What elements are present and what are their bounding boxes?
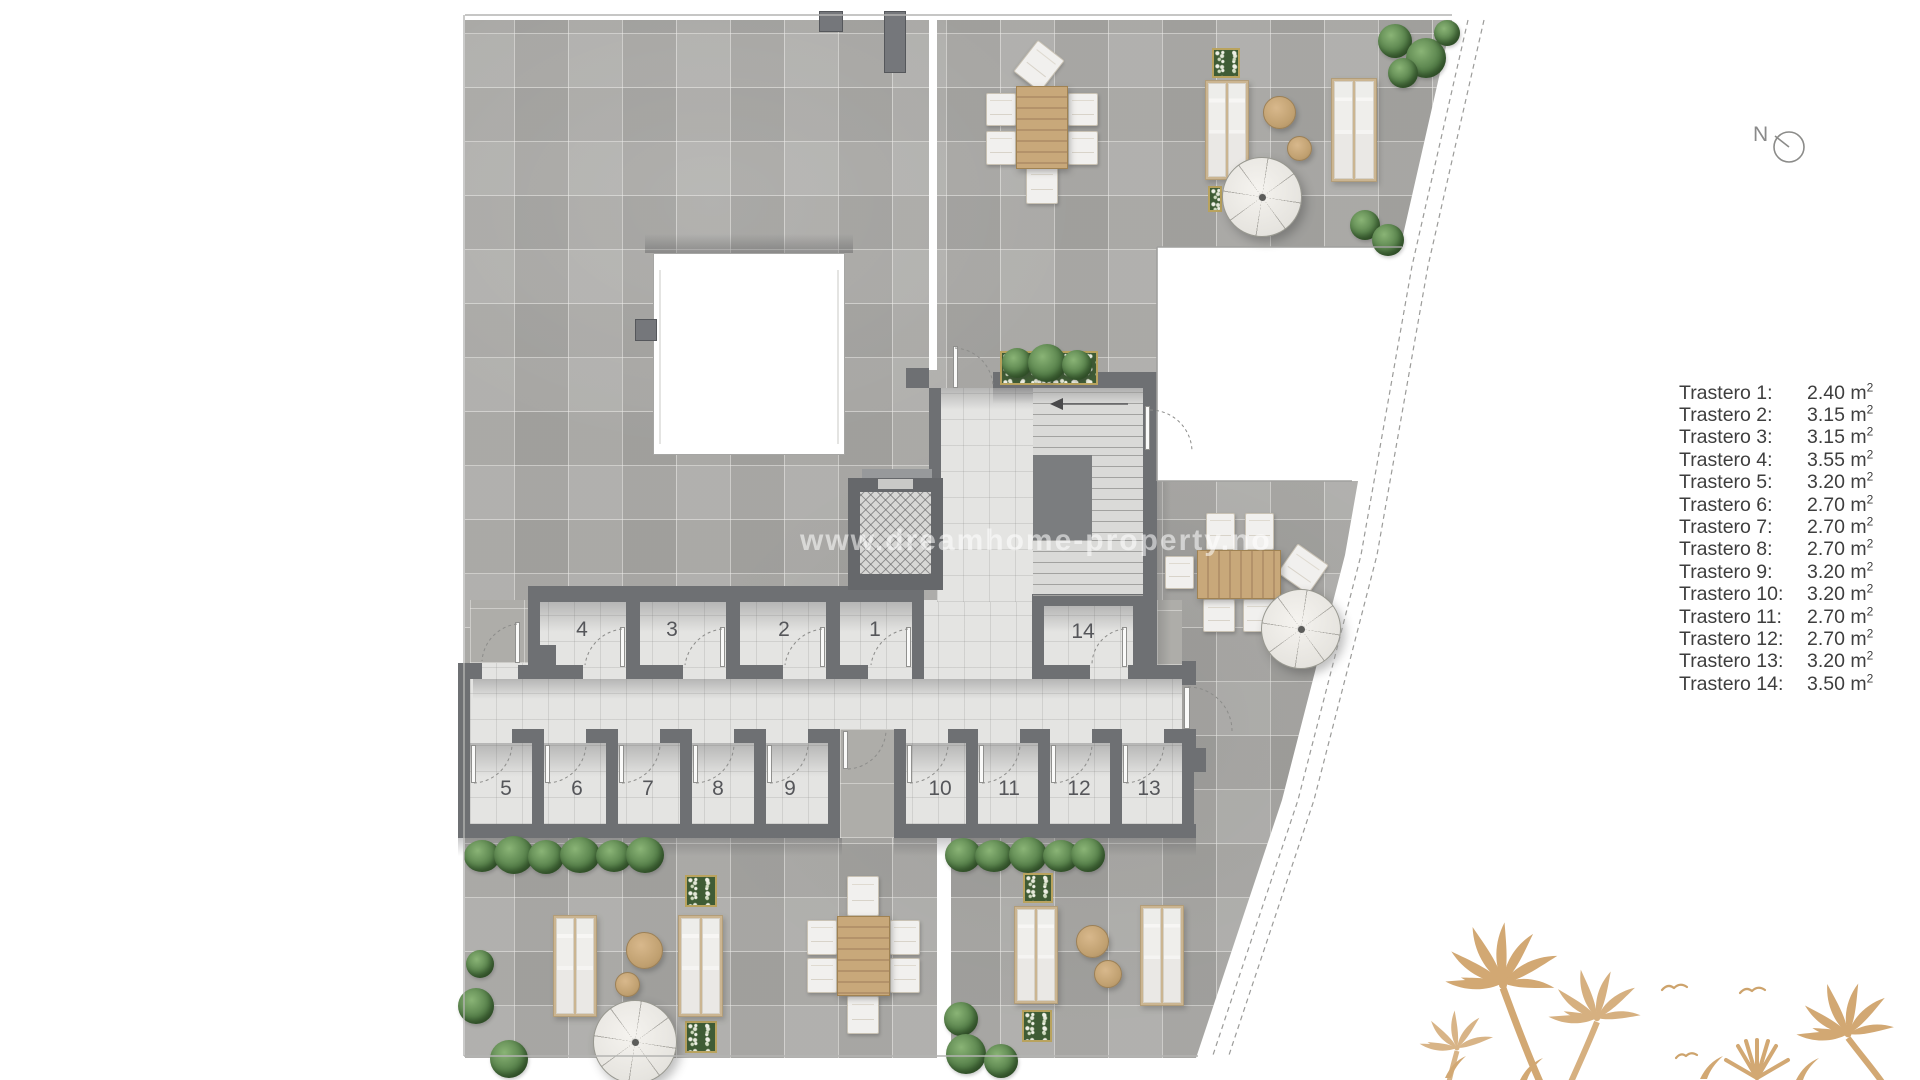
bush-icon bbox=[1434, 20, 1460, 46]
legend-label: Trastero 9: bbox=[1679, 561, 1807, 584]
bush-icon bbox=[466, 950, 494, 978]
round-table bbox=[1076, 925, 1109, 958]
room-shadow bbox=[544, 743, 606, 777]
wall bbox=[540, 645, 556, 665]
wall bbox=[1182, 729, 1196, 748]
legend-area-value: 2.70 m bbox=[1807, 538, 1867, 560]
legend-area: 2.70 m2 bbox=[1807, 494, 1873, 517]
legend-area: 2.70 m2 bbox=[1807, 538, 1873, 561]
wall bbox=[1182, 743, 1194, 838]
legend-area-value: 2.70 m bbox=[1807, 628, 1867, 650]
legend-label: Trastero 7: bbox=[1679, 516, 1807, 539]
watermark: www.dreamhome-property.no bbox=[800, 524, 1272, 558]
palm-trees-decoration bbox=[1419, 922, 1894, 1080]
legend-label: Trastero 10: bbox=[1679, 583, 1807, 606]
chair bbox=[807, 920, 837, 955]
wall bbox=[948, 729, 978, 743]
wall bbox=[1092, 729, 1122, 743]
legend-row: Trastero 6:2.70 m2 bbox=[1679, 494, 1873, 516]
plant-icon bbox=[626, 837, 664, 873]
elevator-door-slit bbox=[878, 479, 913, 489]
parasol-pole bbox=[1298, 626, 1305, 633]
elevator-machine-band bbox=[862, 469, 932, 478]
chair bbox=[807, 958, 837, 993]
neighbor-room-void bbox=[1157, 247, 1407, 481]
legend-label: Trastero 2: bbox=[1679, 404, 1807, 427]
chair bbox=[1165, 556, 1194, 589]
door-leaf bbox=[820, 627, 825, 667]
wall bbox=[906, 368, 929, 388]
planter-box bbox=[685, 875, 717, 907]
room-number-11: 11 bbox=[998, 777, 1020, 801]
roof-chimney-tall bbox=[884, 11, 906, 73]
room-number-8: 8 bbox=[712, 777, 724, 801]
legend-row: Trastero 9:3.20 m2 bbox=[1679, 561, 1873, 583]
wall bbox=[626, 600, 640, 665]
wall bbox=[586, 729, 618, 743]
wall bbox=[734, 729, 766, 743]
legend-area: 2.70 m2 bbox=[1807, 628, 1873, 651]
sun-lounger bbox=[1143, 908, 1161, 1003]
planter-box bbox=[1208, 186, 1222, 212]
wall bbox=[912, 600, 924, 679]
bird-icon bbox=[1676, 1053, 1697, 1058]
legend-area-value: 2.70 m bbox=[1807, 494, 1867, 516]
door-leaf bbox=[907, 745, 912, 783]
legend-area: 3.50 m2 bbox=[1807, 673, 1873, 696]
round-table bbox=[1094, 960, 1122, 988]
room-shadow bbox=[470, 743, 532, 777]
sun-lounger-pair bbox=[678, 915, 723, 1017]
legend-area: 3.55 m2 bbox=[1807, 449, 1873, 472]
legend-area-value: 2.70 m bbox=[1807, 516, 1867, 538]
legend-row: Trastero 5:3.20 m2 bbox=[1679, 472, 1873, 494]
palm-tree-icon bbox=[1445, 922, 1560, 1080]
legend-area-value: 3.55 m bbox=[1807, 449, 1867, 471]
wall bbox=[660, 729, 692, 743]
door-leaf bbox=[720, 627, 725, 667]
door-leaf bbox=[843, 731, 848, 769]
compass-needle bbox=[1775, 136, 1789, 147]
room-number-3: 3 bbox=[666, 618, 678, 642]
plant-icon bbox=[1028, 344, 1066, 382]
room-number-7: 7 bbox=[642, 777, 654, 801]
door-leaf bbox=[619, 745, 624, 783]
door-leaf bbox=[906, 627, 911, 667]
wall bbox=[826, 665, 868, 679]
legend-area: 3.15 m2 bbox=[1807, 404, 1873, 427]
room-number-6: 6 bbox=[571, 777, 583, 801]
legend-area-value: 2.40 m bbox=[1807, 382, 1867, 404]
plant-icon bbox=[1071, 838, 1105, 872]
floor-plan-page: 4 3 2 1 14 5 6 7 8 9 10 11 12 13 www.dre… bbox=[0, 0, 1920, 1080]
sun-lounger bbox=[1208, 83, 1226, 177]
room-shadow bbox=[766, 743, 828, 777]
sun-lounger bbox=[1334, 81, 1353, 179]
legend-area-value: 3.20 m bbox=[1807, 650, 1867, 672]
chair bbox=[1068, 131, 1098, 165]
door-leaf bbox=[979, 745, 984, 783]
legend-row: Trastero 3:3.15 m2 bbox=[1679, 427, 1873, 449]
legend: Trastero 1:2.40 m2 Trastero 2:3.15 m2 Tr… bbox=[1679, 382, 1873, 695]
wall bbox=[726, 600, 740, 665]
room-shadow bbox=[906, 743, 966, 777]
roof-separation-strip bbox=[929, 14, 937, 370]
door-leaf bbox=[1123, 745, 1128, 783]
sun-lounger-pair bbox=[1140, 905, 1184, 1006]
terrace-passage bbox=[840, 729, 894, 838]
legend-area-sup: 2 bbox=[1867, 604, 1874, 618]
bush-icon bbox=[490, 1040, 528, 1078]
sun-lounger bbox=[556, 918, 574, 1014]
chair bbox=[847, 996, 879, 1034]
door-leaf bbox=[953, 346, 958, 388]
legend-label: Trastero 14: bbox=[1679, 673, 1807, 696]
wall bbox=[1038, 743, 1050, 824]
legend-area-value: 3.50 m bbox=[1807, 673, 1867, 695]
sun-lounger bbox=[1163, 908, 1181, 1003]
legend-area-sup: 2 bbox=[1867, 492, 1874, 506]
wall bbox=[1020, 729, 1050, 743]
compass-circle bbox=[1774, 132, 1804, 162]
door-leaf bbox=[1122, 627, 1127, 667]
chair bbox=[890, 958, 920, 993]
room-shadow bbox=[692, 743, 754, 777]
palm-tree-icon bbox=[1796, 982, 1894, 1080]
legend-area-sup: 2 bbox=[1867, 649, 1874, 663]
legend-area-value: 3.20 m bbox=[1807, 561, 1867, 583]
palm-tree-icon bbox=[1419, 1010, 1494, 1080]
legend-area-sup: 2 bbox=[1867, 671, 1874, 685]
wall bbox=[512, 729, 544, 743]
room-number-1: 1 bbox=[869, 618, 881, 642]
wall bbox=[680, 743, 692, 824]
wall bbox=[606, 743, 618, 824]
wall bbox=[826, 600, 840, 665]
legend-area: 2.70 m2 bbox=[1807, 516, 1873, 539]
hedge bbox=[468, 840, 662, 874]
planter-box bbox=[685, 1021, 717, 1053]
wall bbox=[894, 729, 906, 838]
sun-lounger bbox=[576, 918, 594, 1014]
legend-row: Trastero 13:3.20 m2 bbox=[1679, 651, 1873, 673]
wall bbox=[894, 824, 1196, 838]
legend-area-sup: 2 bbox=[1867, 380, 1874, 394]
planter-box bbox=[1212, 48, 1240, 78]
legend-row: Trastero 4:3.55 m2 bbox=[1679, 449, 1873, 471]
legend-area: 3.15 m2 bbox=[1807, 426, 1873, 449]
legend-label: Trastero 4: bbox=[1679, 449, 1807, 472]
bush-icon bbox=[1388, 58, 1418, 88]
legend-area-sup: 2 bbox=[1867, 515, 1874, 529]
legend-label: Trastero 11: bbox=[1679, 606, 1807, 629]
sun-lounger-pair bbox=[1331, 78, 1377, 182]
legend-area-value: 3.20 m bbox=[1807, 583, 1867, 605]
legend-area: 2.40 m2 bbox=[1807, 382, 1873, 405]
stair-flight-top bbox=[1033, 392, 1143, 455]
bush-icon bbox=[944, 1002, 978, 1036]
legend-area-sup: 2 bbox=[1867, 627, 1874, 641]
dining-table bbox=[1016, 86, 1068, 169]
door-leaf bbox=[1184, 687, 1190, 729]
legend-area: 3.20 m2 bbox=[1807, 471, 1873, 494]
corridor-shadow bbox=[473, 679, 1182, 699]
wall bbox=[828, 729, 840, 838]
room-number-9: 9 bbox=[784, 777, 796, 801]
legend-area-sup: 2 bbox=[1867, 425, 1874, 439]
planter-box bbox=[1023, 873, 1053, 903]
room-number-10: 10 bbox=[928, 777, 951, 801]
plant-icon bbox=[975, 840, 1013, 872]
door-leaf bbox=[515, 622, 520, 663]
legend-area-sup: 2 bbox=[1867, 403, 1874, 417]
plant-icon bbox=[528, 840, 564, 874]
legend-area: 3.20 m2 bbox=[1807, 583, 1873, 606]
room-shadow bbox=[1122, 743, 1182, 777]
wall bbox=[966, 743, 978, 824]
room-number-12: 12 bbox=[1067, 777, 1090, 801]
grass-icon bbox=[1520, 1058, 1543, 1080]
door-leaf bbox=[1051, 745, 1056, 783]
sun-lounger-pair bbox=[1014, 906, 1058, 1004]
plant-icon bbox=[1009, 837, 1047, 873]
room-shadow bbox=[978, 743, 1038, 777]
room-number-2: 2 bbox=[778, 618, 790, 642]
bush-icon bbox=[458, 988, 494, 1024]
sun-lounger bbox=[702, 918, 721, 1014]
legend-area-sup: 2 bbox=[1867, 559, 1874, 573]
chair bbox=[890, 920, 920, 955]
legend-area: 2.70 m2 bbox=[1807, 606, 1873, 629]
grass-icon bbox=[1796, 1058, 1819, 1080]
legend-area-sup: 2 bbox=[1867, 582, 1874, 596]
legend-area-sup: 2 bbox=[1867, 470, 1874, 484]
skylight-shadow bbox=[645, 234, 853, 253]
legend-area-sup: 2 bbox=[1867, 447, 1874, 461]
round-table bbox=[626, 932, 663, 969]
grass-icon bbox=[1445, 1056, 1466, 1078]
wall bbox=[532, 743, 544, 824]
chair bbox=[847, 876, 879, 916]
hedge bbox=[947, 840, 1102, 872]
wall bbox=[754, 743, 766, 824]
round-table bbox=[1287, 136, 1312, 161]
lobby-floor bbox=[937, 388, 1033, 602]
legend-label: Trastero 6: bbox=[1679, 494, 1807, 517]
legend-row: Trastero 12:2.70 m2 bbox=[1679, 628, 1873, 650]
door-leaf bbox=[471, 745, 476, 783]
legend-area-sup: 2 bbox=[1867, 537, 1874, 551]
sun-lounger bbox=[1017, 909, 1035, 1001]
legend-area-value: 3.15 m bbox=[1807, 426, 1867, 448]
skylight-vent-block bbox=[635, 319, 657, 341]
wall bbox=[726, 665, 783, 679]
bush-icon bbox=[1372, 224, 1404, 256]
room-shadow bbox=[1050, 743, 1110, 777]
compass-north-label: N bbox=[1753, 123, 1768, 146]
legend-area: 3.20 m2 bbox=[1807, 650, 1873, 673]
room-number-4: 4 bbox=[576, 618, 588, 642]
legend-area-value: 3.15 m bbox=[1807, 404, 1867, 426]
fan-palm-icon bbox=[1726, 1040, 1788, 1078]
door-leaf bbox=[1145, 406, 1150, 450]
legend-area-value: 3.20 m bbox=[1807, 471, 1867, 493]
room-number-5: 5 bbox=[500, 777, 512, 801]
legend-label: Trastero 1: bbox=[1679, 382, 1807, 405]
room-number-13: 13 bbox=[1137, 777, 1160, 801]
wall bbox=[929, 388, 941, 478]
planter-box bbox=[1022, 1010, 1052, 1042]
legend-row: Trastero 10:3.20 m2 bbox=[1679, 584, 1873, 606]
wall bbox=[1194, 748, 1206, 772]
legend-row: Trastero 7:2.70 m2 bbox=[1679, 516, 1873, 538]
room-number-14: 14 bbox=[1071, 620, 1094, 644]
chair bbox=[1203, 599, 1235, 632]
parasol-pole bbox=[1259, 194, 1266, 201]
chair bbox=[1026, 166, 1058, 204]
wall bbox=[458, 663, 470, 838]
parasol-pole bbox=[632, 1039, 639, 1046]
bush-icon bbox=[946, 1034, 986, 1074]
bird-icon bbox=[1662, 985, 1687, 990]
grass-icon bbox=[1700, 1056, 1723, 1079]
sun-lounger-pair bbox=[553, 915, 597, 1017]
wall bbox=[1133, 594, 1157, 679]
bird-icon bbox=[1740, 988, 1765, 993]
chair bbox=[1068, 93, 1098, 126]
sun-lounger bbox=[1037, 909, 1055, 1001]
wall bbox=[1110, 743, 1122, 824]
chair bbox=[986, 131, 1016, 165]
chair bbox=[986, 93, 1016, 126]
wall bbox=[528, 600, 540, 665]
plant-icon bbox=[1062, 350, 1092, 380]
legend-row: Trastero 2:3.15 m2 bbox=[1679, 404, 1873, 426]
legend-label: Trastero 5: bbox=[1679, 471, 1807, 494]
room-shadow bbox=[640, 602, 726, 632]
round-table bbox=[1263, 96, 1296, 129]
legend-row: Trastero 11:2.70 m2 bbox=[1679, 606, 1873, 628]
wall bbox=[1143, 372, 1157, 388]
legend-area: 3.20 m2 bbox=[1807, 561, 1873, 584]
round-table bbox=[615, 972, 640, 997]
sun-lounger bbox=[681, 918, 700, 1014]
roof-chimney-small bbox=[819, 11, 843, 32]
room-shadow bbox=[618, 743, 680, 777]
skylight-void bbox=[653, 253, 845, 455]
north-compass: N bbox=[1753, 123, 1804, 162]
door-leaf bbox=[693, 745, 698, 783]
legend-label: Trastero 13: bbox=[1679, 650, 1807, 673]
legend-row: Trastero 1:2.40 m2 bbox=[1679, 382, 1873, 404]
palm-tree-icon bbox=[1548, 968, 1641, 1080]
door-leaf bbox=[545, 745, 550, 783]
legend-row: Trastero 14:3.50 m2 bbox=[1679, 673, 1873, 695]
legend-area-value: 2.70 m bbox=[1807, 606, 1867, 628]
door-leaf bbox=[620, 627, 625, 667]
sun-lounger bbox=[1355, 81, 1374, 179]
legend-label: Trastero 12: bbox=[1679, 628, 1807, 651]
legend-row: Trastero 8:2.70 m2 bbox=[1679, 539, 1873, 561]
legend-label: Trastero 8: bbox=[1679, 538, 1807, 561]
legend-label: Trastero 3: bbox=[1679, 426, 1807, 449]
dining-table bbox=[837, 916, 890, 996]
wall bbox=[518, 665, 583, 679]
plant-icon bbox=[560, 837, 600, 873]
bush-icon bbox=[984, 1044, 1018, 1078]
wall bbox=[626, 665, 683, 679]
door-leaf bbox=[767, 745, 772, 783]
wall bbox=[1032, 594, 1044, 679]
